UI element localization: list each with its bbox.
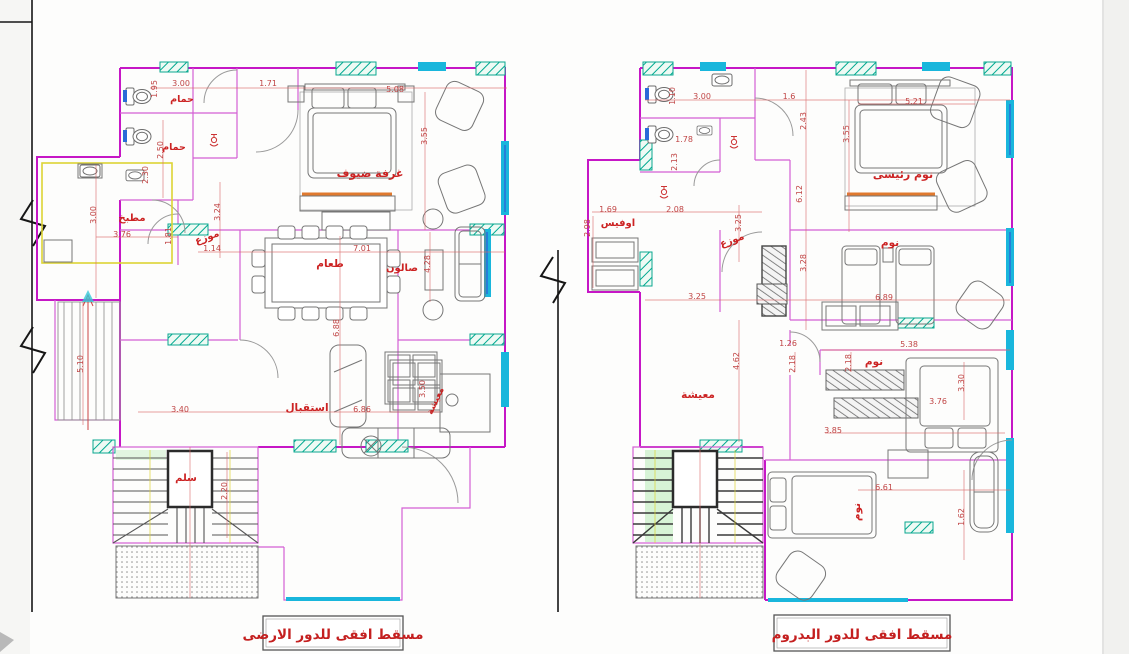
dimension-label: 1.71	[259, 79, 277, 88]
dimension-label: 1.26	[779, 339, 797, 348]
dimension-label: 6.89	[875, 293, 893, 302]
dimension-label: 3.25	[688, 292, 706, 301]
dimension-label: 2.18	[844, 354, 853, 372]
dimension-label: 6.12	[795, 185, 804, 203]
toilet-tank-accent	[645, 128, 649, 140]
dimension-label: 2.43	[799, 112, 808, 130]
kitchen-counter	[42, 163, 172, 263]
bidet-icon	[660, 186, 668, 198]
dimension-label: 3.76	[113, 230, 131, 239]
door-arcs	[694, 98, 1012, 480]
guest-room-furniture	[288, 78, 488, 215]
dimension-label: 1.6	[783, 92, 796, 101]
dimension-label: 1.95	[150, 80, 159, 98]
room-label: مطبخ	[118, 213, 145, 224]
dimension-label: 2.98	[583, 219, 592, 237]
dimension-label: 5.10	[76, 355, 85, 373]
room-label: نوم رئيسى	[873, 168, 933, 181]
dimension-label: 3.28	[799, 254, 808, 272]
toilet-tank-accent	[123, 90, 127, 102]
dimension-label: 4.28	[423, 255, 432, 273]
dimension-label: 2.20	[220, 482, 229, 500]
dimension-label: 1.69	[599, 205, 617, 214]
exterior-stair	[58, 290, 120, 430]
dimension-label: 3.40	[171, 405, 189, 414]
dimension-label: 2.50	[156, 141, 165, 159]
dimension-label: 2.18	[788, 355, 797, 373]
room-label: اوفيس	[601, 218, 635, 229]
entry-paving	[116, 546, 258, 598]
dimension-lines	[83, 88, 507, 598]
toilet-tank-accent	[645, 88, 649, 100]
dimension-label: 3.55	[842, 125, 851, 143]
room-label: صالون	[386, 263, 418, 274]
dimension-label: 3.24	[213, 203, 222, 221]
dimension-label: 5.08	[386, 85, 404, 94]
entry-paving	[636, 546, 763, 598]
floor-plan-drawing: مسقط افقى للدور الارضى مسقط افقى للدور ا…	[0, 0, 1129, 654]
room-label: معيشة	[681, 389, 715, 401]
dimension-label: 6.61	[875, 483, 893, 492]
room-label: نوم	[865, 356, 883, 368]
dimension-label: 3.00	[89, 206, 98, 224]
dimension-label: 5.38	[900, 340, 918, 349]
ground-floor-title: مسقط افقى للدور الارضى	[243, 627, 424, 643]
toilet-tank-accent	[123, 130, 127, 142]
room-label: نوم	[851, 503, 863, 521]
dimension-label: 3.85	[824, 426, 842, 435]
dimension-label: 3.00	[693, 92, 711, 101]
dimension-label: 6.88	[332, 319, 341, 337]
room-label: حمام	[162, 142, 186, 153]
dimension-label: 5.21	[905, 97, 923, 106]
stair-core	[673, 451, 717, 507]
wardrobe	[826, 370, 904, 390]
room-label: طعام	[316, 258, 344, 270]
dimension-label: 3.30	[957, 374, 966, 392]
title-box-ground-floor: مسقط افقى للدور الارضى	[243, 616, 424, 650]
dimension-label: 3.00	[172, 79, 190, 88]
walls	[37, 68, 505, 600]
dimension-label: 1.10	[668, 87, 677, 105]
dimension-label: 3.50	[418, 380, 427, 398]
staircase	[633, 447, 763, 598]
room-label: سلم	[175, 473, 197, 484]
office-cabinets	[592, 238, 638, 290]
basement-title: مسقط افقى للدور البدروم	[772, 627, 953, 643]
bidet-icon	[210, 134, 218, 146]
master-bedroom-furniture	[845, 74, 990, 215]
dimension-label: 1.62	[957, 508, 966, 526]
bidet-icon	[730, 136, 738, 148]
closet-hatch	[757, 246, 918, 418]
room-label: معيشة	[426, 386, 447, 416]
dimension-label: 2.30	[141, 166, 150, 184]
dimension-label: 1.14	[203, 244, 221, 253]
dimension-label: 3.25	[734, 214, 743, 232]
dimension-label: 6.86	[353, 405, 371, 414]
room-label: غرفة ضيوف	[337, 167, 404, 180]
dimension-label: 4.62	[732, 352, 741, 370]
ground-floor-plan	[37, 62, 509, 601]
break-line-icon	[541, 257, 565, 303]
cad-floor-plan-canvas: مسقط افقى للدور الارضى مسقط افقى للدور ا…	[0, 0, 1129, 654]
room-label: موزع	[718, 231, 745, 250]
room-label: حمام	[170, 94, 194, 105]
dimension-label: 3.55	[420, 127, 429, 145]
bottom-bedroom-furniture	[768, 450, 998, 604]
lower-bedroom-furniture	[906, 358, 998, 452]
basement-floor-plan	[588, 62, 1014, 604]
dimension-label: 1.81	[164, 227, 173, 245]
dimension-label: 3.76	[929, 397, 947, 406]
dimension-label: 2.13	[670, 153, 679, 171]
dimension-label: 1.78	[675, 135, 693, 144]
room-label: نوم	[881, 237, 899, 249]
wardrobe	[834, 398, 918, 418]
dimension-label: 7.01	[353, 244, 371, 253]
room-label: استقبال	[285, 402, 328, 414]
staircase	[113, 447, 258, 598]
title-box-basement: مسقط افقى للدور البدروم	[772, 615, 953, 651]
dimension-label: 2.08	[666, 205, 684, 214]
